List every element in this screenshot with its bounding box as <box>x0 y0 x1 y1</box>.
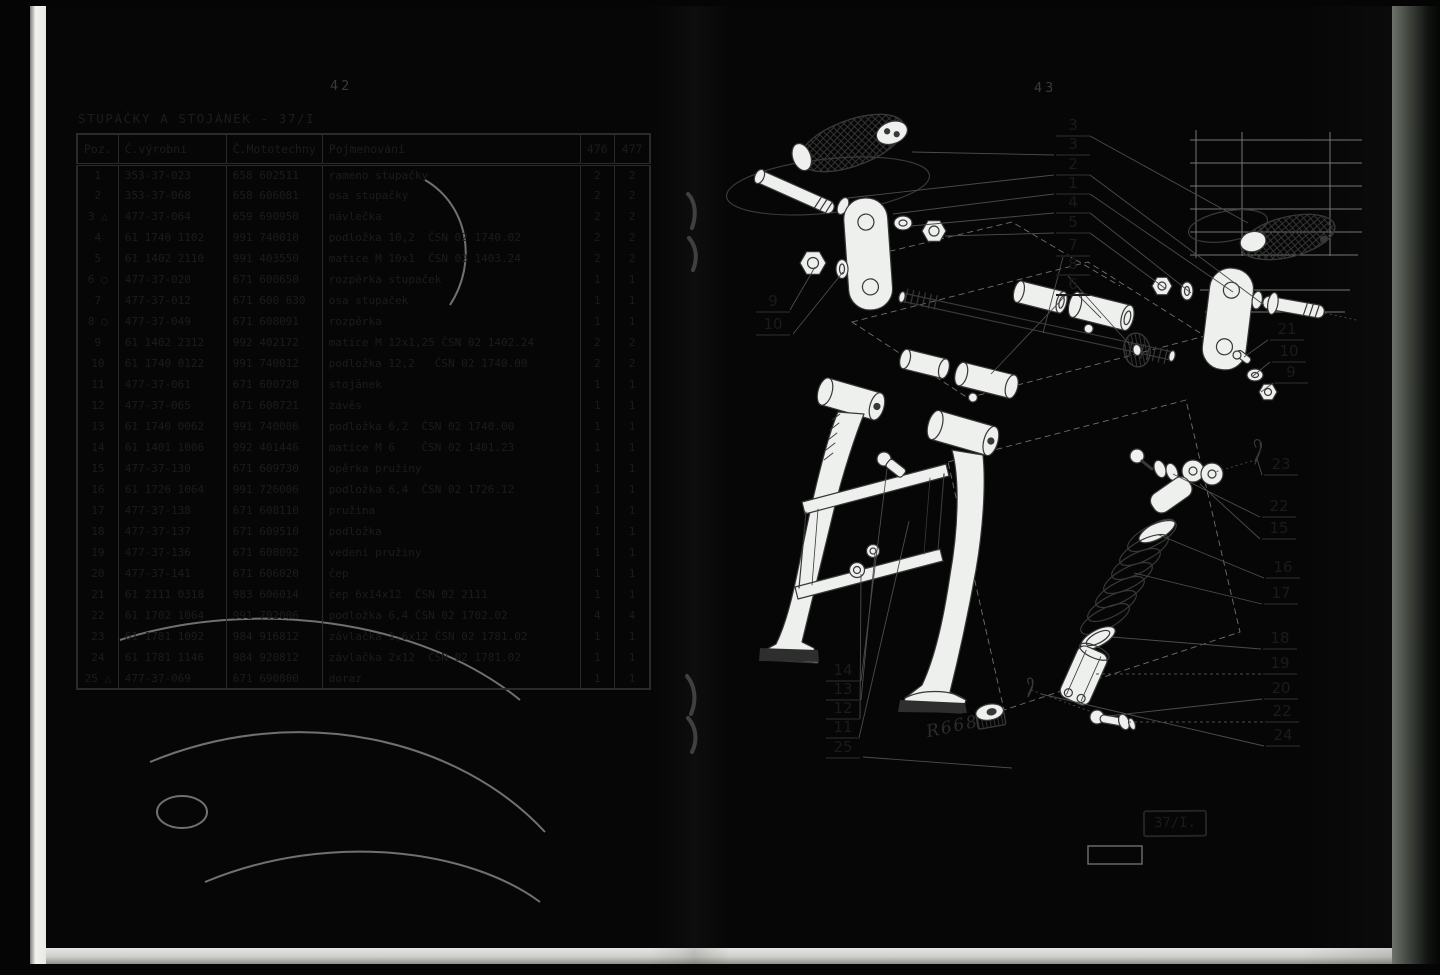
pos-cell: 12 <box>77 395 118 416</box>
qty-477-cell: 1 <box>614 584 650 605</box>
qty-477-cell: 1 <box>614 437 650 458</box>
figure-callout-12: 12 <box>826 700 860 720</box>
qty-476-cell: 1 <box>580 395 614 416</box>
figure-callout-21: 21 <box>1270 321 1304 341</box>
mototechny-cell: 983 606014 <box>226 584 322 605</box>
table-row: 1461 1401 1006992 401446matice M 6 ČSN 0… <box>77 437 650 458</box>
name-cell: rameno stupačky <box>322 164 580 185</box>
qty-476-cell: 1 <box>580 479 614 500</box>
pos-cell: 23 <box>77 626 118 647</box>
figure-callout-11: 11 <box>826 719 860 739</box>
table-row: 2261 1702 1064991 702006podložka 6,4 ČSN… <box>77 605 650 626</box>
pos-cell: 5 <box>77 248 118 269</box>
mototechny-cell: 992 402172 <box>226 332 322 353</box>
figure-callout-22: 22 <box>1262 498 1296 518</box>
mototechny-cell: 991 403550 <box>226 248 322 269</box>
vyrobni-cell: 61 1740 0062 <box>118 416 226 437</box>
figure-callout-3: 3 <box>1056 136 1090 156</box>
figure-callout-17: 17 <box>1264 585 1298 605</box>
figure-callout-1: 1 <box>1056 175 1090 195</box>
qty-476-cell: 2 <box>580 332 614 353</box>
figure-callout-10: 10 <box>1272 343 1306 363</box>
qty-476-cell: 1 <box>580 500 614 521</box>
right-page-shade <box>1300 6 1394 964</box>
qty-477-cell: 1 <box>614 416 650 437</box>
pos-cell: 6 ○ <box>77 269 118 290</box>
qty-476-cell: 2 <box>580 248 614 269</box>
qty-477-cell: 1 <box>614 521 650 542</box>
vyrobni-cell: 477-37-069 <box>118 668 226 689</box>
qty-476-cell: 1 <box>580 311 614 332</box>
qty-477-cell: 2 <box>614 206 650 227</box>
pos-cell: 8 ○ <box>77 311 118 332</box>
qty-477-cell: 1 <box>614 269 650 290</box>
mototechny-cell: 671 608092 <box>226 542 322 563</box>
table-row: 25 △477-37-069671 690800doraz11 <box>77 668 650 689</box>
column-header: Č.výrobní <box>118 134 226 164</box>
figure-callout-23: 23 <box>1264 456 1298 476</box>
table-header-row: Poz.Č.výrobníČ.MototechnyPojmenování4764… <box>77 134 650 164</box>
column-header: 476 <box>580 134 614 164</box>
qty-477-cell: 1 <box>614 563 650 584</box>
figure-callout-22: 22 <box>1265 703 1299 723</box>
mototechny-cell: 671 600720 <box>226 374 322 395</box>
vyrobni-cell: 477-37-141 <box>118 563 226 584</box>
pos-cell: 15 <box>77 458 118 479</box>
mototechny-cell: 671 690800 <box>226 668 322 689</box>
qty-477-cell: 2 <box>614 248 650 269</box>
qty-477-cell: 4 <box>614 605 650 626</box>
vyrobni-cell: 477-37-065 <box>118 395 226 416</box>
figure-callout-5: 5 <box>1056 214 1090 234</box>
mototechny-cell: 671 608110 <box>226 500 322 521</box>
table-row: 2461 1781 1146984 920812závlačka 2x12 ČS… <box>77 647 650 668</box>
vyrobni-cell: 61 1781 1146 <box>118 647 226 668</box>
table-row: 961 1402 2312992 402172matice M 12x1,25 … <box>77 332 650 353</box>
table-row: 6 ○477-37-020671 600650rozpěrka stupaček… <box>77 269 650 290</box>
mototechny-cell: 671 600721 <box>226 395 322 416</box>
pos-cell: 11 <box>77 374 118 395</box>
vyrobni-cell: 477-37-020 <box>118 269 226 290</box>
name-cell: čep 6x14x12 ČSN 02 2111 <box>322 584 580 605</box>
vyrobni-cell: 477-37-136 <box>118 542 226 563</box>
binding-fold-shadow <box>650 6 730 964</box>
table-row: 2161 2111 0318983 606014čep 6x14x12 ČSN … <box>77 584 650 605</box>
name-cell: stojánek <box>322 374 580 395</box>
qty-476-cell: 1 <box>580 584 614 605</box>
mototechny-cell: 984 916812 <box>226 626 322 647</box>
qty-476-cell: 1 <box>580 458 614 479</box>
name-cell: podložka <box>322 521 580 542</box>
table-row: 19477-37-136671 608092vedení pružiny11 <box>77 542 650 563</box>
name-cell: podložka 6,4 ČSN 02 1726.12 <box>322 479 580 500</box>
figure-callout-9: 9 <box>1274 364 1308 384</box>
name-cell: osa stupačky <box>322 185 580 206</box>
vyrobni-cell: 477-37-138 <box>118 500 226 521</box>
qty-476-cell: 1 <box>580 542 614 563</box>
column-header: 477 <box>614 134 650 164</box>
pos-cell: 18 <box>77 521 118 542</box>
figure-callout-24: 24 <box>1266 727 1300 747</box>
table-row: 7477-37-012671 600 630osa stupaček11 <box>77 290 650 311</box>
vyrobni-cell: 61 1702 1064 <box>118 605 226 626</box>
figure-callout-13: 13 <box>826 681 860 701</box>
name-cell: matice M 10x1 ČSN 02 1403.24 <box>322 248 580 269</box>
qty-476-cell: 1 <box>580 290 614 311</box>
mototechny-cell: 671 600 630 <box>226 290 322 311</box>
vyrobni-cell: 61 1402 2110 <box>118 248 226 269</box>
qty-477-cell: 2 <box>614 185 650 206</box>
qty-477-cell: 1 <box>614 542 650 563</box>
table-row: 18477-37-137671 609510podložka11 <box>77 521 650 542</box>
pos-cell: 1 <box>77 164 118 185</box>
mototechny-cell: 671 608091 <box>226 311 322 332</box>
table-row: 15477-37-130671 609730opěrka pružiny11 <box>77 458 650 479</box>
pos-cell: 4 <box>77 227 118 248</box>
scan-border-bottom <box>0 964 1440 975</box>
vyrobni-cell: 61 1740 1102 <box>118 227 226 248</box>
figure-callout-4: 4 <box>1056 194 1090 214</box>
table-row: 1353-37-023658 602511rameno stupačky22 <box>77 164 650 185</box>
name-cell: podložka 10,2 ČSN 02 1740.02 <box>322 227 580 248</box>
qty-476-cell: 1 <box>580 521 614 542</box>
name-cell: rozpěrka <box>322 311 580 332</box>
qty-477-cell: 1 <box>614 395 650 416</box>
pos-cell: 21 <box>77 584 118 605</box>
page-number-left: 42 <box>330 78 352 94</box>
qty-477-cell: 1 <box>614 374 650 395</box>
qty-477-cell: 1 <box>614 668 650 689</box>
name-cell: podložka 6,4 ČSN 02 1702.02 <box>322 605 580 626</box>
pos-cell: 24 <box>77 647 118 668</box>
pos-cell: 2 <box>77 185 118 206</box>
qty-476-cell: 2 <box>580 353 614 374</box>
pos-cell: 17 <box>77 500 118 521</box>
figure-callout-15: 15 <box>1262 520 1296 540</box>
mototechny-cell: 671 606020 <box>226 563 322 584</box>
qty-476-cell: 1 <box>580 437 614 458</box>
column-header: Pojmenování <box>322 134 580 164</box>
figure-callout-7: 7 <box>1056 237 1090 257</box>
qty-477-cell: 2 <box>614 227 650 248</box>
mototechny-cell: 991 740006 <box>226 416 322 437</box>
name-cell: pružina <box>322 500 580 521</box>
mototechny-cell: 984 920812 <box>226 647 322 668</box>
qty-476-cell: 1 <box>580 269 614 290</box>
pos-cell: 9 <box>77 332 118 353</box>
qty-476-cell: 2 <box>580 227 614 248</box>
qty-476-cell: 2 <box>580 185 614 206</box>
qty-477-cell: 1 <box>614 290 650 311</box>
table-row: 2361 1781 1092984 916812závlačka 1,6x12 … <box>77 626 650 647</box>
figure-number-label: 37/I. <box>1143 810 1207 838</box>
qty-477-cell: 1 <box>614 647 650 668</box>
pos-cell: 25 △ <box>77 668 118 689</box>
vyrobni-cell: 353-37-023 <box>118 164 226 185</box>
table-row: 1361 1740 0062991 740006podložka 6,2 ČSN… <box>77 416 650 437</box>
mototechny-cell: 658 606081 <box>226 185 322 206</box>
name-cell: vedení pružiny <box>322 542 580 563</box>
pos-cell: 10 <box>77 353 118 374</box>
table-row: 3 △477-37-064659 690950návlečka22 <box>77 206 650 227</box>
figure-callout-9: 9 <box>756 293 790 313</box>
pos-cell: 20 <box>77 563 118 584</box>
table-row: 461 1740 1102991 740010podložka 10,2 ČSN… <box>77 227 650 248</box>
name-cell: závěs <box>322 395 580 416</box>
vyrobni-cell: 477-37-130 <box>118 458 226 479</box>
qty-476-cell: 1 <box>580 626 614 647</box>
parts-table: Poz.Č.výrobníČ.MototechnyPojmenování4764… <box>76 133 651 690</box>
pos-cell: 16 <box>77 479 118 500</box>
name-cell: návlečka <box>322 206 580 227</box>
name-cell: rozpěrka stupaček <box>322 269 580 290</box>
page-stack-edge <box>30 6 46 964</box>
qty-476-cell: 1 <box>580 563 614 584</box>
qty-477-cell: 1 <box>614 626 650 647</box>
figure-callout-20: 20 <box>1264 680 1298 700</box>
page-number-right: 43 <box>1034 80 1056 96</box>
figure-callout-3: 3 <box>1056 117 1090 137</box>
mototechny-cell: 659 690950 <box>226 206 322 227</box>
vyrobni-cell: 477-37-064 <box>118 206 226 227</box>
name-cell: čep <box>322 563 580 584</box>
pos-cell: 19 <box>77 542 118 563</box>
qty-477-cell: 1 <box>614 458 650 479</box>
table-row: 20477-37-141671 606020čep11 <box>77 563 650 584</box>
vyrobni-cell: 61 1401 1006 <box>118 437 226 458</box>
table-row: 2353-37-068658 606081osa stupačky22 <box>77 185 650 206</box>
mototechny-cell: 671 609510 <box>226 521 322 542</box>
table-row: 8 ○477-37-049671 608091rozpěrka11 <box>77 311 650 332</box>
mototechny-cell: 671 609730 <box>226 458 322 479</box>
figure-callout-14: 14 <box>826 662 860 682</box>
figure-callout-2: 2 <box>1056 156 1090 176</box>
name-cell: podložka 12,2 ČSN 02 1740.00 <box>322 353 580 374</box>
qty-477-cell: 1 <box>614 311 650 332</box>
vyrobni-cell: 353-37-068 <box>118 185 226 206</box>
vyrobni-cell: 477-37-012 <box>118 290 226 311</box>
mototechny-cell: 992 401446 <box>226 437 322 458</box>
vyrobni-cell: 61 2111 0318 <box>118 584 226 605</box>
qty-477-cell: 1 <box>614 479 650 500</box>
qty-476-cell: 2 <box>580 206 614 227</box>
qty-476-cell: 4 <box>580 605 614 626</box>
mototechny-cell: 658 602511 <box>226 164 322 185</box>
mototechny-cell: 671 600650 <box>226 269 322 290</box>
scan-border-right <box>1392 0 1440 975</box>
qty-476-cell: 1 <box>580 416 614 437</box>
figure-callout-10: 10 <box>756 316 790 336</box>
vyrobni-cell: 61 1740 0122 <box>118 353 226 374</box>
vyrobni-cell: 61 1402 2312 <box>118 332 226 353</box>
mototechny-cell: 991 740012 <box>226 353 322 374</box>
vyrobni-cell: 61 1726 1064 <box>118 479 226 500</box>
name-cell: matice M 12x1,25 ČSN 02 1402.24 <box>322 332 580 353</box>
scan-border-left <box>0 0 30 975</box>
table-row: 1661 1726 1064991 726006podložka 6,4 ČSN… <box>77 479 650 500</box>
name-cell: doraz <box>322 668 580 689</box>
qty-476-cell: 1 <box>580 374 614 395</box>
name-cell: závlačka 2x12 ČSN 02 1781.02 <box>322 647 580 668</box>
vyrobni-cell: 61 1781 1092 <box>118 626 226 647</box>
name-cell: matice M 6 ČSN 02 1401.23 <box>322 437 580 458</box>
table-row: 1061 1740 0122991 740012podložka 12,2 ČS… <box>77 353 650 374</box>
scan-border-top <box>0 0 1440 6</box>
figure-callout-25: 25 <box>826 739 860 759</box>
figure-callout-6: 6 <box>1056 276 1090 296</box>
figure-callout-19: 19 <box>1263 655 1297 675</box>
qty-477-cell: 2 <box>614 164 650 185</box>
name-cell: závlačka 1,6x12 ČSN 02 1781.02 <box>322 626 580 647</box>
table-row: 561 1402 2110991 403550matice M 10x1 ČSN… <box>77 248 650 269</box>
figure-callout-16: 16 <box>1266 559 1300 579</box>
figure-callout-8: 8 <box>1056 256 1090 276</box>
mototechny-cell: 991 702006 <box>226 605 322 626</box>
qty-476-cell: 1 <box>580 647 614 668</box>
table-row: 12477-37-065671 600721závěs11 <box>77 395 650 416</box>
pos-cell: 22 <box>77 605 118 626</box>
vyrobni-cell: 477-37-061 <box>118 374 226 395</box>
name-cell: opěrka pružiny <box>322 458 580 479</box>
mototechny-cell: 991 726006 <box>226 479 322 500</box>
qty-476-cell: 2 <box>580 164 614 185</box>
column-header: Poz. <box>77 134 118 164</box>
column-header: Č.Mototechny <box>226 134 322 164</box>
section-title: STUPAČKY A STOJÁNEK - 37/I <box>78 111 315 126</box>
table-row: 11477-37-061671 600720stojánek11 <box>77 374 650 395</box>
pos-cell: 7 <box>77 290 118 311</box>
pos-cell: 14 <box>77 437 118 458</box>
mototechny-cell: 991 740010 <box>226 227 322 248</box>
qty-477-cell: 2 <box>614 353 650 374</box>
name-cell: osa stupaček <box>322 290 580 311</box>
qty-477-cell: 1 <box>614 500 650 521</box>
name-cell: podložka 6,2 ČSN 02 1740.00 <box>322 416 580 437</box>
qty-477-cell: 2 <box>614 332 650 353</box>
qty-476-cell: 1 <box>580 668 614 689</box>
table-row: 17477-37-138671 608110pružina11 <box>77 500 650 521</box>
pos-cell: 13 <box>77 416 118 437</box>
pos-cell: 3 △ <box>77 206 118 227</box>
vyrobni-cell: 477-37-049 <box>118 311 226 332</box>
figure-callout-18: 18 <box>1263 630 1297 650</box>
vyrobni-cell: 477-37-137 <box>118 521 226 542</box>
